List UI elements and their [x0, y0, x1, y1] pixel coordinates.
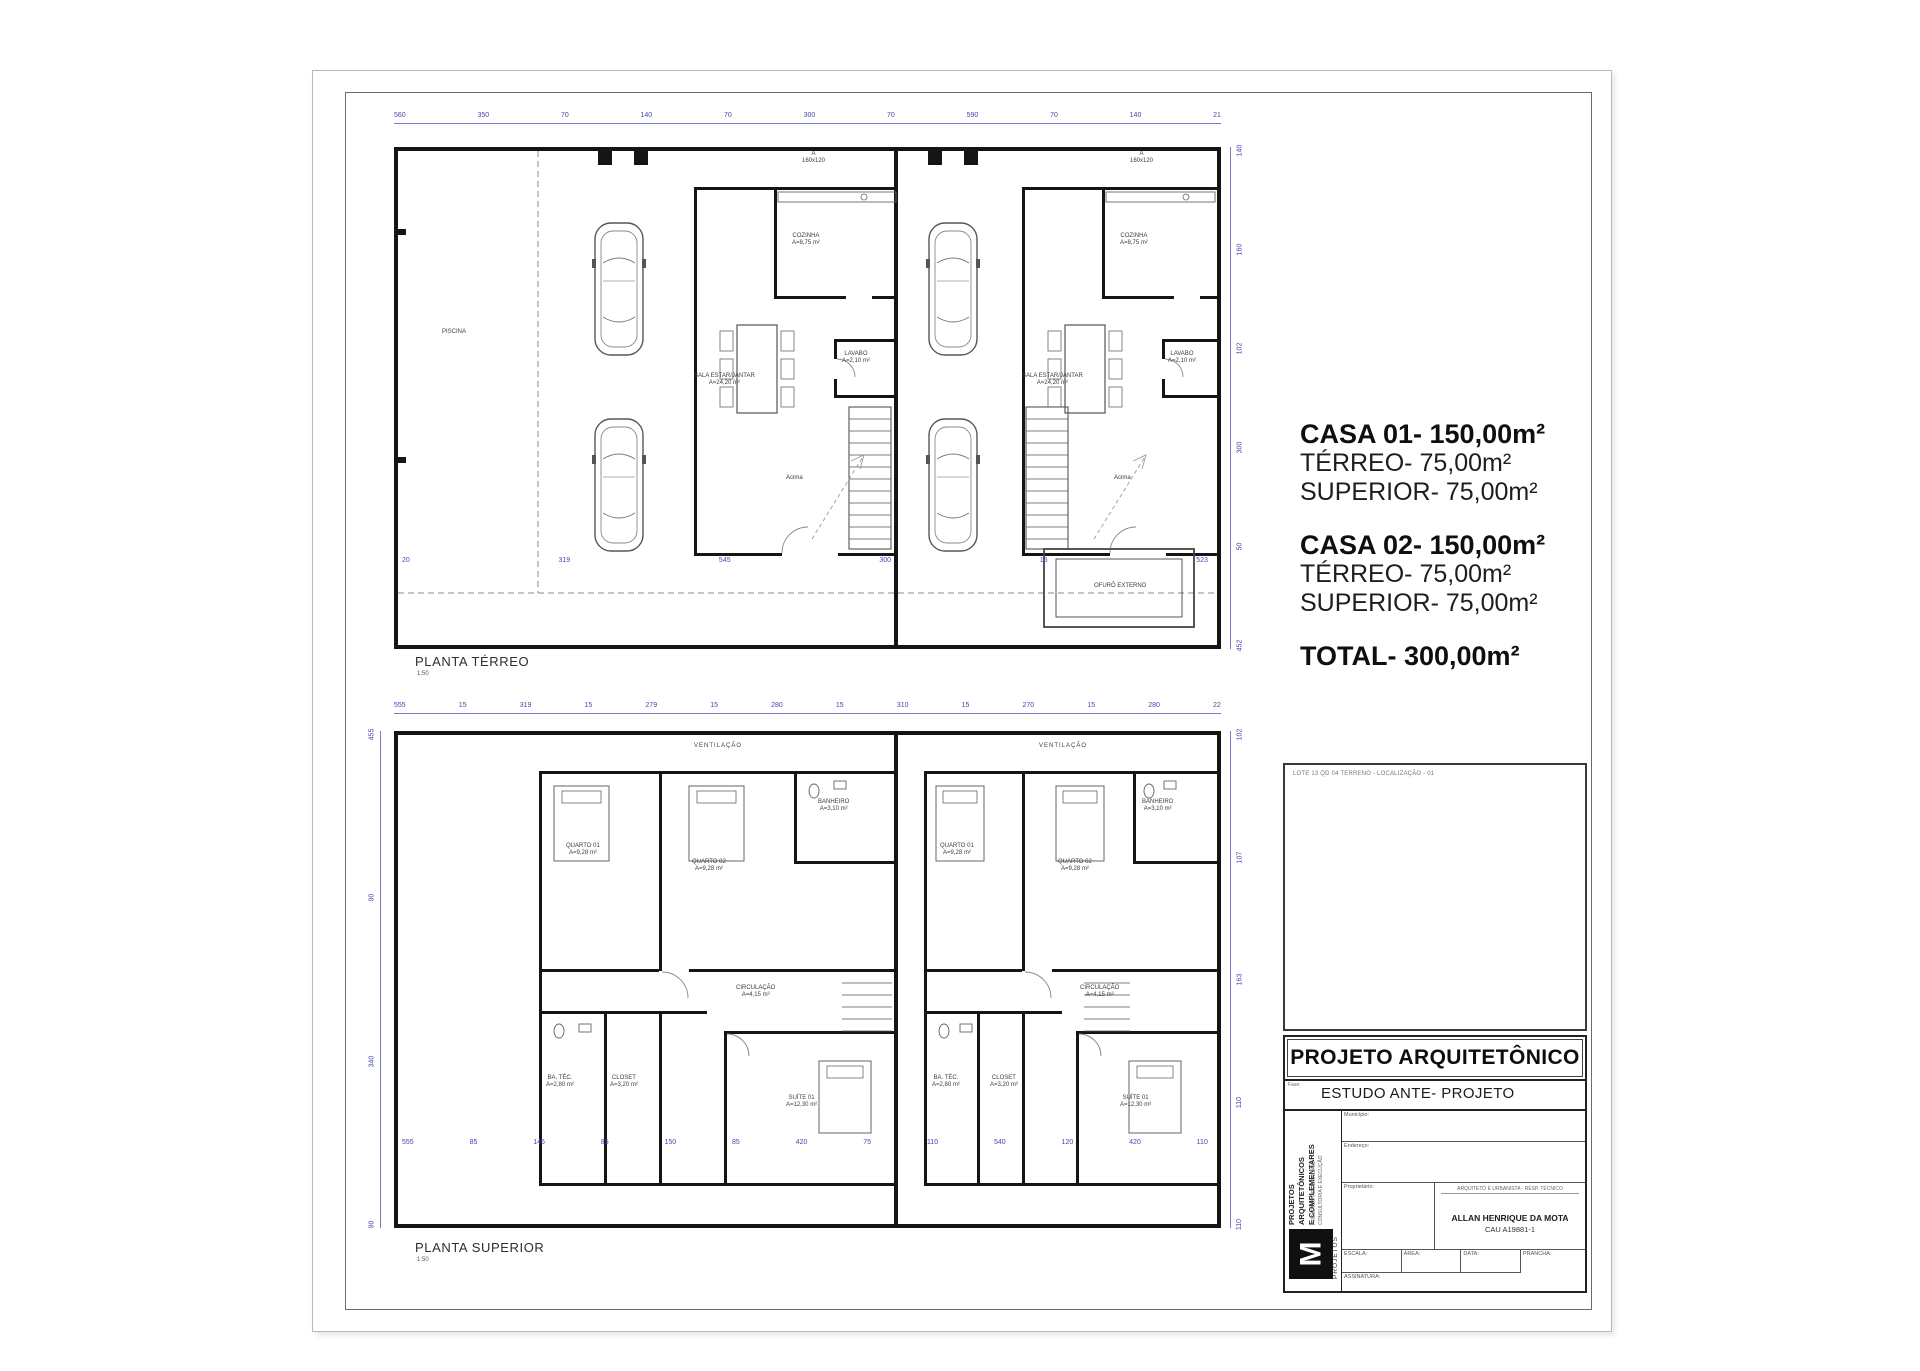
field-proprietario: Proprietário: [1342, 1183, 1435, 1249]
walls-superior [394, 731, 1221, 1228]
dim-value: 280 [1148, 702, 1160, 709]
dim-value: 15 [710, 702, 718, 709]
dim-value: 22 [1213, 702, 1221, 709]
room-label: CLOSET A=3,20 m² [990, 1075, 1018, 1089]
room-label: Acima [786, 475, 803, 482]
logo-letter: M [1296, 1242, 1326, 1267]
field-escala: ESCALA: [1342, 1250, 1402, 1272]
dim-values-right: 102107163110110 [1234, 731, 1246, 1228]
stairs-icon [849, 407, 1068, 549]
dim-value: 90 [368, 1221, 375, 1229]
dim-value: 163 [1237, 974, 1244, 986]
field-prancha: PRANCHA: [1521, 1250, 1585, 1291]
dim-value: 310 [897, 702, 909, 709]
title-block-fields: Município: Endereço: Proprietário: ARQUI… [1342, 1111, 1585, 1291]
dim-value: 420 [1129, 1139, 1141, 1146]
dim-value: 455 [369, 729, 376, 741]
dim-line-top [394, 123, 1221, 124]
dim-values-right: 14016010230050452 [1234, 147, 1246, 649]
dim-values-bottom: 55585145851508542075110540120420110 [402, 1139, 1208, 1146]
room-label: SALA ESTAR/JANTAR A=24,20 m² [694, 373, 755, 387]
casa2-superior: SUPERIOR- 75,00m² [1300, 589, 1600, 618]
dining-table-icon [720, 325, 1122, 413]
total-area: TOTAL- 300,00m² [1300, 642, 1600, 671]
field-assinatura-label: ASSINATURA: [1344, 1274, 1380, 1280]
plan-superior-drawing [394, 731, 1221, 1228]
dim-value: 110 [927, 1139, 938, 1146]
dim-value: 523 [1196, 557, 1208, 564]
dim-value: 300 [1237, 442, 1244, 454]
field-escala-label: ESCALA: [1344, 1251, 1367, 1257]
plan-terreo: 5603507014070300705907014021 20319545300… [394, 147, 1221, 649]
dim-value: 140 [1130, 112, 1142, 119]
walls-terreo [394, 147, 1221, 649]
dim-value: 545 [719, 557, 731, 564]
dim-value: 50 [1236, 543, 1243, 551]
room-label: CIRCULAÇÃO A=4,15 m² [1080, 985, 1119, 999]
dim-value: 15 [459, 702, 467, 709]
dim-value: 70 [724, 112, 732, 119]
dim-value: 350 [477, 112, 489, 119]
dim-value: 420 [796, 1139, 808, 1146]
plan-terreo-scale: 1:50 [417, 671, 429, 677]
bed-icon [554, 786, 1181, 1133]
dim-value: 280 [771, 702, 783, 709]
spacer [1300, 618, 1600, 642]
field-endereco-label: Endereço: [1344, 1143, 1369, 1149]
room-label: OFURÔ EXTERNO [1094, 583, 1146, 590]
dim-value: 85 [732, 1139, 740, 1146]
bath-fixtures [554, 781, 1176, 1038]
phase-box: Fase: ESTUDO ANTE- PROJETO [1283, 1079, 1587, 1111]
area-summary: CASA 01- 150,00m² TÉRREO- 75,00m² SUPERI… [1300, 420, 1600, 671]
dim-value: 85 [601, 1139, 609, 1146]
m-logo-icon: M [1289, 1229, 1333, 1279]
plan-terreo-drawing [394, 147, 1221, 649]
architect-header: ARQUITETO E URBANISTA - RESP. TÉCNICO [1441, 1186, 1579, 1194]
room-label: COZINHA A=8,75 m² [792, 233, 820, 247]
field-data-label: DATA: [1463, 1251, 1478, 1257]
dim-value: 452 [1237, 640, 1244, 652]
architect-cell: ARQUITETO E URBANISTA - RESP. TÉCNICO AL… [1435, 1183, 1585, 1249]
drawing-sheet: 5603507014070300705907014021 20319545300… [0, 0, 1920, 1371]
dim-value: 300 [804, 112, 816, 119]
field-owner-architect: Proprietário: ARQUITETO E URBANISTA - RE… [1342, 1183, 1585, 1250]
dim-value: 15 [962, 702, 970, 709]
firm-contact: PROJETOS RESIDENCIAIS CONSULTORIA E EXEC… [1311, 1117, 1325, 1225]
dim-value: 145 [533, 1139, 545, 1146]
phase-label: Fase: [1288, 1082, 1301, 1088]
dim-values-top: 5603507014070300705907014021 [394, 112, 1221, 119]
room-label: BA. TÉC. A=2,80 m² [546, 1075, 574, 1089]
kitchen-counter [778, 192, 1215, 202]
casa2-title: CASA 02- 150,00m² [1300, 531, 1600, 560]
room-label: QUARTO 02 A=9,28 m² [692, 859, 726, 873]
spacer [1300, 507, 1600, 531]
casa1-superior: SUPERIOR- 75,00m² [1300, 478, 1600, 507]
room-label: LAVABO A=2,10 m² [842, 351, 870, 365]
dim-value: 319 [559, 557, 571, 564]
dim-line-top [394, 713, 1221, 714]
dim-value: 15 [1040, 557, 1048, 564]
dim-value: 107 [1237, 851, 1244, 863]
dim-value: 110 [1236, 1096, 1243, 1107]
dim-line-left [380, 731, 381, 1228]
dim-value: 540 [994, 1139, 1006, 1146]
dim-value: 90 [368, 894, 375, 902]
room-label: BA. TÉC. A=2,80 m² [932, 1075, 960, 1089]
room-label: CLOSET A=3,20 m² [610, 1075, 638, 1089]
dim-value: 75 [863, 1139, 871, 1146]
plan-superior-scale: 1:50 [417, 1257, 429, 1263]
plan-superior-title: PLANTA SUPERIOR [415, 1240, 544, 1255]
logo-caption: PROJETOS [1332, 1231, 1339, 1279]
dim-value: 160 [1237, 244, 1244, 256]
dim-value: 140 [1237, 145, 1244, 157]
room-label: A 160x120 [1130, 151, 1153, 165]
plan-superior: 55515319152791528015310152701528022 5558… [394, 731, 1221, 1228]
dim-value: 102 [1237, 729, 1244, 741]
dim-value: 15 [1087, 702, 1095, 709]
phase-value: ESTUDO ANTE- PROJETO [1321, 1085, 1515, 1102]
casa1-title: CASA 01- 150,00m² [1300, 420, 1600, 449]
ventilacao-label-1: VENTILAÇÃO [694, 743, 742, 750]
room-label: QUARTO 02 A=9,28 m² [1058, 859, 1092, 873]
architect-name: ALLAN HENRIQUE DA MOTA [1435, 1213, 1585, 1223]
room-label: A 160x120 [802, 151, 825, 165]
casa1-terreo: TÉRREO- 75,00m² [1300, 449, 1600, 478]
field-area: ÁREA: [1402, 1250, 1462, 1272]
dim-value: 140 [641, 112, 653, 119]
dim-value: 555 [402, 1139, 414, 1146]
dim-value: 555 [394, 702, 406, 709]
dim-values-bottom: 2031954530015523 [402, 557, 1208, 564]
room-label: CIRCULAÇÃO A=4,15 m² [736, 985, 775, 999]
field-assinatura: ASSINATURA: [1342, 1272, 1521, 1291]
room-label: QUARTO 01 A=9,28 m² [566, 843, 600, 857]
dim-value: 20 [402, 557, 410, 564]
plan-terreo-title: PLANTA TÉRREO [415, 654, 529, 669]
room-label: SUÍTE 01 A=12,30 m² [1120, 1095, 1151, 1109]
dim-value: 15 [585, 702, 593, 709]
title-block: LOTE 13 QD 04 TERRENO - LOCALIZAÇÃO - 01… [1283, 763, 1587, 1291]
location-note: LOTE 13 QD 04 TERRENO - LOCALIZAÇÃO - 01 [1293, 771, 1434, 777]
location-map-box: LOTE 13 QD 04 TERRENO - LOCALIZAÇÃO - 01 [1283, 763, 1587, 1031]
architect-cau: CAU A19881-1 [1435, 1225, 1585, 1234]
dim-value: 70 [887, 112, 895, 119]
room-label: SUÍTE 01 A=12,30 m² [786, 1095, 817, 1109]
dim-value: 70 [561, 112, 569, 119]
room-label: SALA ESTAR/JANTAR A=24,20 m² [1022, 373, 1083, 387]
room-label: QUARTO 01 A=9,28 m² [940, 843, 974, 857]
dim-values-left: 4559034090 [366, 731, 378, 1228]
dim-value: 319 [520, 702, 532, 709]
casa2-terreo: TÉRREO- 75,00m² [1300, 560, 1600, 589]
dim-value: 300 [879, 557, 891, 564]
title-block-main: PROJETOS ARQUITETÔNICOS E COMPLEMENTARES… [1283, 1109, 1587, 1293]
room-label: PISCINA [442, 329, 466, 336]
dim-value: 279 [645, 702, 657, 709]
field-data: DATA: [1461, 1250, 1521, 1272]
field-prancha-label: PRANCHA: [1523, 1251, 1551, 1257]
field-endereco: Endereço: [1342, 1142, 1585, 1183]
dim-value: 102 [1237, 343, 1244, 355]
dim-value: 85 [470, 1139, 478, 1146]
room-label: COZINHA A=8,75 m² [1120, 233, 1148, 247]
dim-value: 70 [1050, 112, 1058, 119]
dim-value: 270 [1023, 702, 1035, 709]
project-title-box: PROJETO ARQUITETÔNICO [1283, 1035, 1587, 1081]
cell-row: ESCALA: ÁREA: DATA: [1342, 1250, 1521, 1272]
field-area-label: ÁREA: [1404, 1251, 1421, 1257]
dim-value: 15 [836, 702, 844, 709]
room-label: BANHEIRO A=3,10 m² [1142, 799, 1173, 813]
field-proprietario-label: Proprietário: [1344, 1184, 1374, 1190]
room-label: Acima [1114, 475, 1131, 482]
dim-value: 120 [1062, 1139, 1074, 1146]
dim-value: 560 [394, 112, 406, 119]
room-label: BANHEIRO A=3,10 m² [818, 799, 849, 813]
dim-value: 590 [967, 112, 979, 119]
project-title: PROJETO ARQUITETÔNICO [1287, 1039, 1583, 1077]
field-municipio-label: Município: [1344, 1112, 1369, 1118]
ventilacao-label-2: VENTILAÇÃO [1039, 743, 1087, 750]
room-label: LAVABO A=2,10 m² [1168, 351, 1196, 365]
dim-value: 110 [1236, 1219, 1243, 1230]
dim-line-right [1230, 731, 1231, 1228]
firm-strip: PROJETOS ARQUITETÔNICOS E COMPLEMENTARES… [1285, 1111, 1342, 1291]
bottom-fields: ESCALA: ÁREA: DATA: ASSINATURA: [1342, 1250, 1585, 1291]
door-arcs [782, 359, 1183, 553]
dim-value: 150 [664, 1139, 676, 1146]
dim-value: 340 [369, 1055, 376, 1067]
field-municipio: Município: [1342, 1111, 1585, 1142]
bottom-cells: ESCALA: ÁREA: DATA: ASSINATURA: [1342, 1250, 1521, 1291]
dim-values-top: 55515319152791528015310152701528022 [394, 702, 1221, 709]
stair-direction-arrows [812, 455, 1146, 539]
dim-line-right [1230, 147, 1231, 649]
dim-value: 110 [1197, 1139, 1208, 1146]
dim-value: 21 [1213, 112, 1221, 119]
